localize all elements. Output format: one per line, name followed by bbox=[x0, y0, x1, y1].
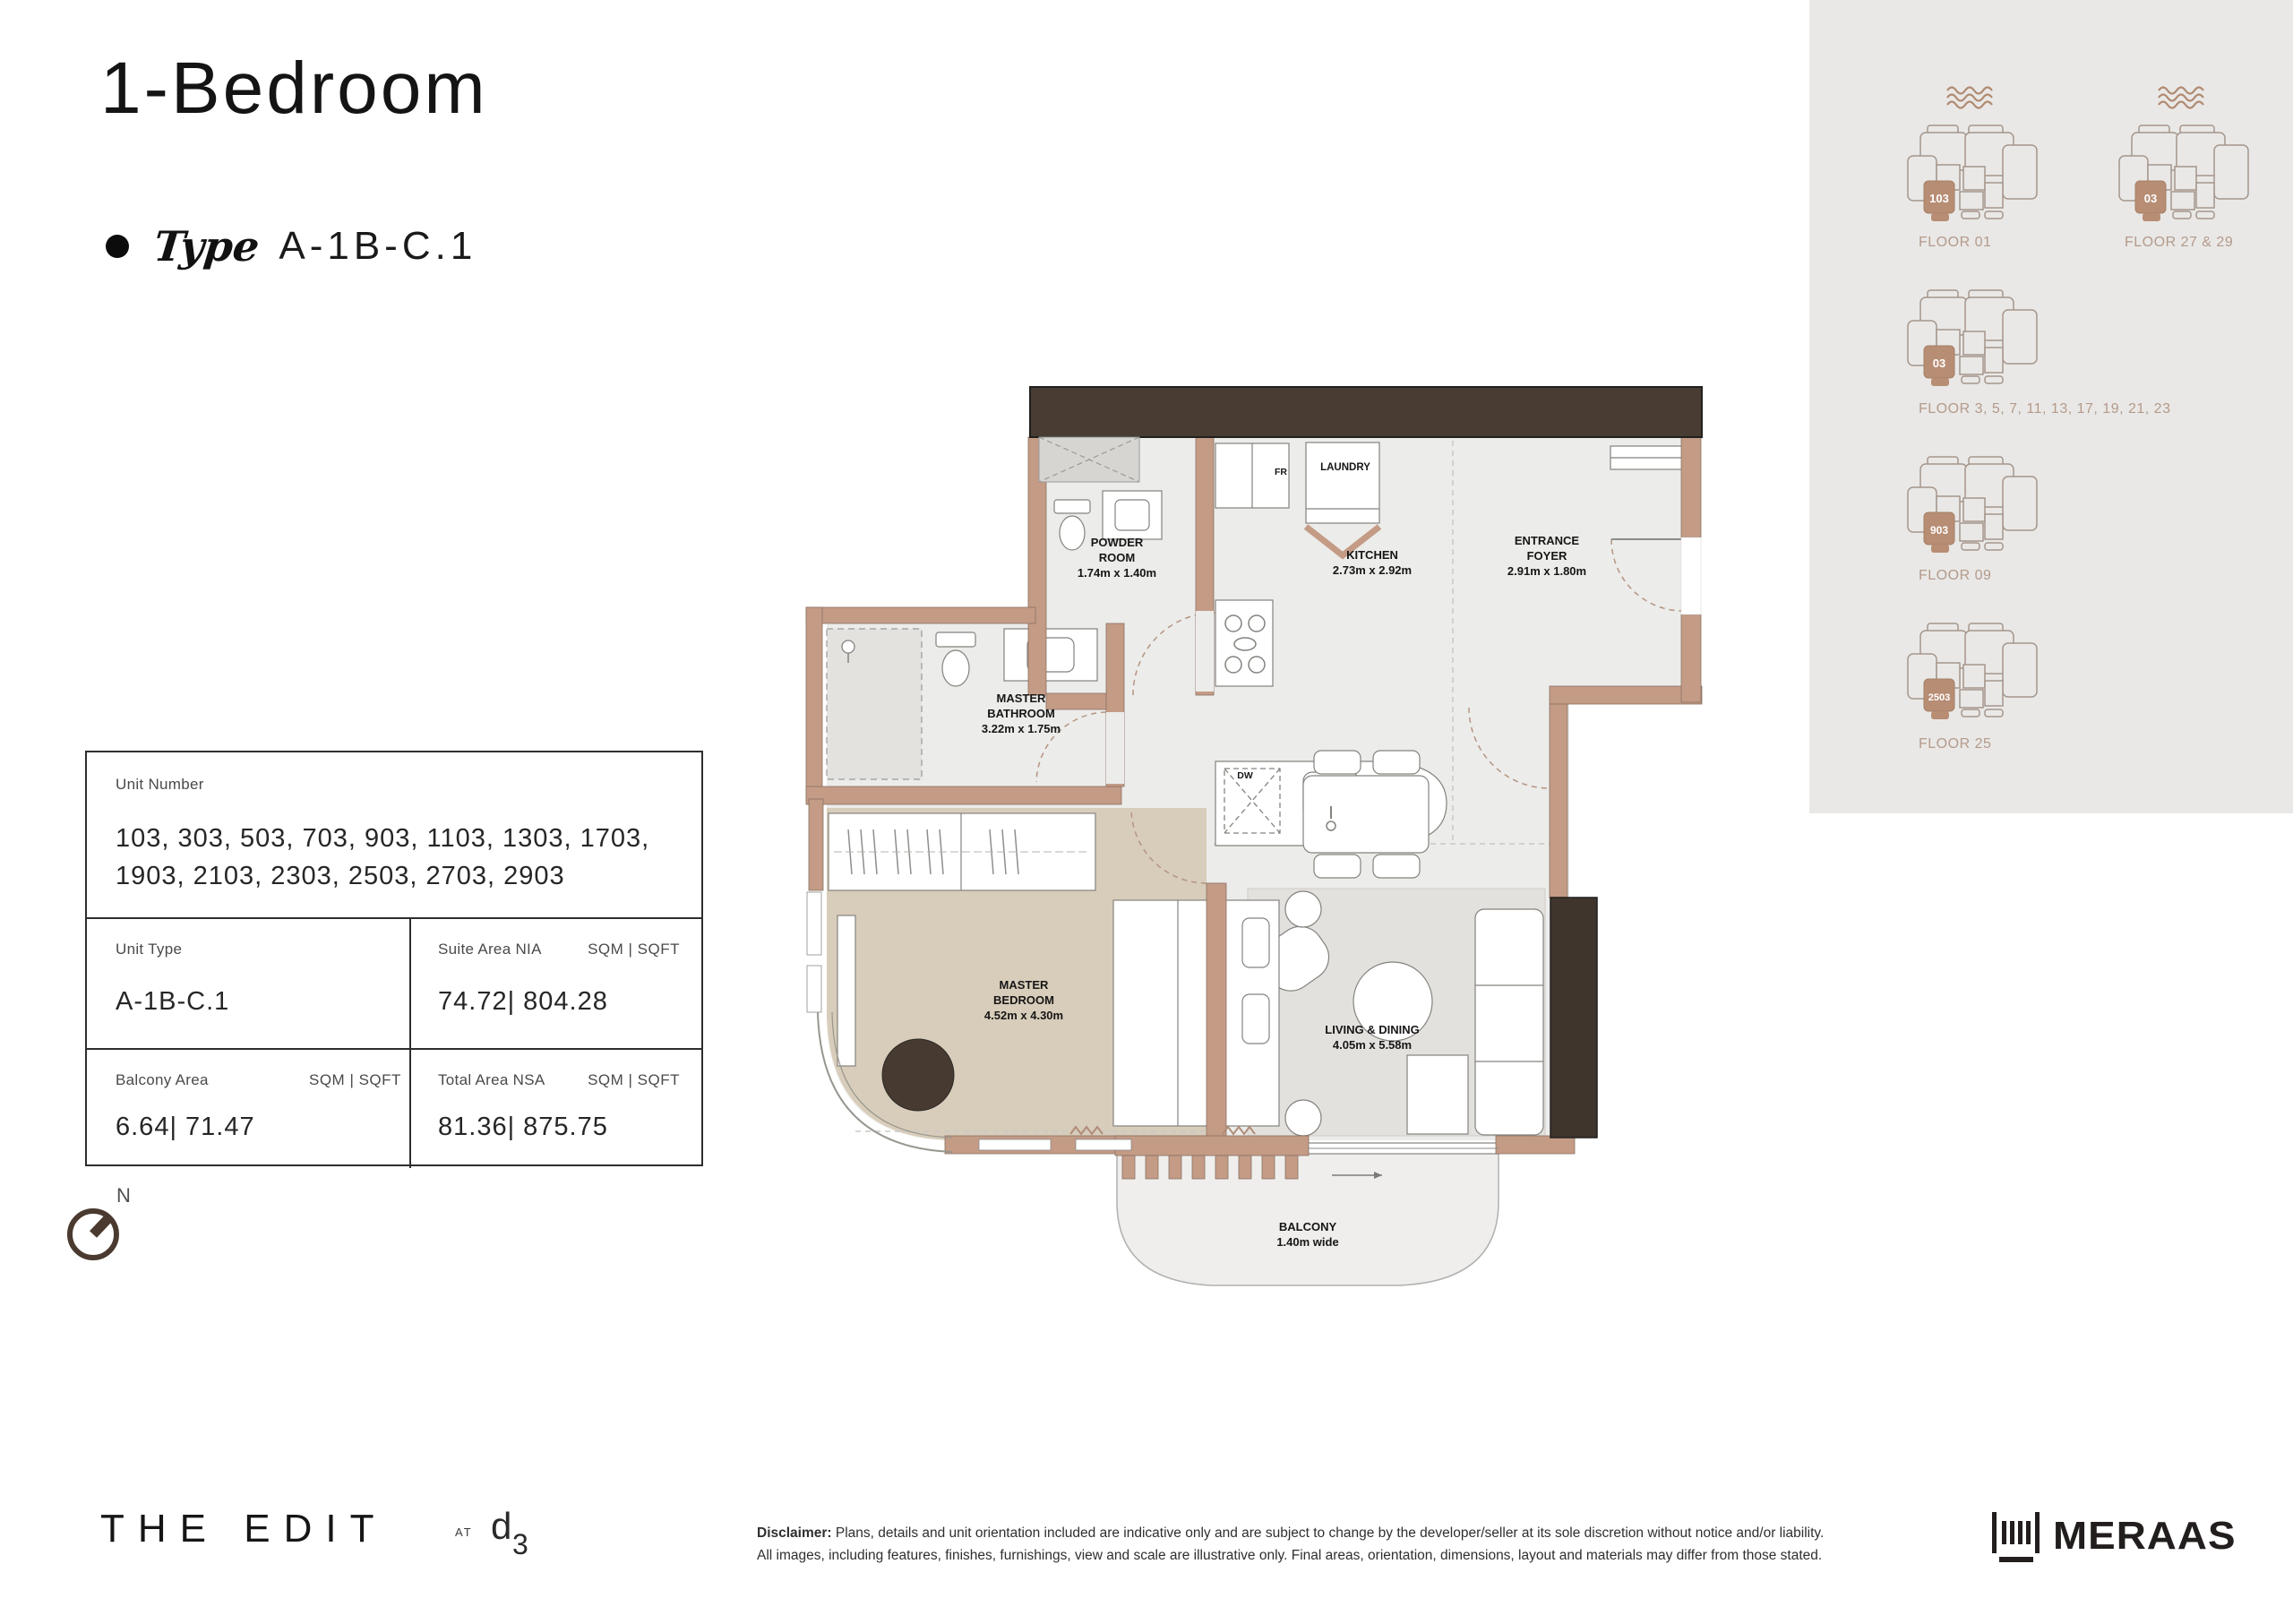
room-label-foyer: ENTRANCE FOYER 2.91m x 1.80m bbox=[1498, 534, 1596, 580]
page-title: 1-Bedroom bbox=[100, 47, 488, 131]
disclaimer-line2: All images, including features, finishes… bbox=[757, 1548, 1822, 1563]
keyplan-unit-number: 2503 bbox=[1928, 692, 1950, 703]
room-name: ENTRANCE FOYER bbox=[1498, 534, 1596, 564]
balcony-area-units: SQM | SQFT bbox=[309, 1071, 401, 1089]
room-name: BALCONY bbox=[1279, 1220, 1336, 1235]
keyplan-floor-25: 2503 bbox=[1906, 622, 2042, 724]
brand-at-label: AT bbox=[455, 1525, 473, 1539]
keyplan-label-floor-09: FLOOR 09 bbox=[1919, 568, 1991, 584]
room-name: MASTER BEDROOM bbox=[977, 978, 1071, 1009]
dishwasher-label: DW bbox=[1237, 770, 1253, 781]
north-arrow-icon bbox=[61, 1184, 168, 1274]
keyplan-label-floor-odd: FLOOR 3, 5, 7, 11, 13, 17, 19, 21, 23 bbox=[1919, 401, 2170, 417]
balcony-area-label: Balcony Area bbox=[116, 1071, 209, 1089]
keyplan-floor-odd: 03 bbox=[1906, 288, 2042, 391]
total-area-value: 81.36| 875.75 bbox=[438, 1113, 608, 1142]
balcony-area-value: 6.64| 71.47 bbox=[116, 1113, 255, 1142]
type-script-label: Type bbox=[151, 222, 262, 271]
brand-logo: THE EDIT bbox=[100, 1507, 387, 1551]
room-label-bath: MASTER BATHROOM 3.22m x 1.75m bbox=[970, 692, 1073, 737]
room-label-bed: MASTER BEDROOM 4.52m x 4.30m bbox=[977, 978, 1071, 1024]
keyplan-floor-09: 903 bbox=[1906, 455, 2042, 557]
room-dims: 4.52m x 4.30m bbox=[984, 1009, 1063, 1024]
type-value: A-1B-C.1 bbox=[279, 224, 477, 269]
unit-type-label: Unit Type bbox=[116, 941, 182, 958]
developer-logo: MERAAS bbox=[2053, 1514, 2237, 1559]
unit-number-line1: 103, 303, 503, 703, 903, 1103, 1303, 170… bbox=[116, 824, 649, 854]
d3-logo-3: 3 bbox=[512, 1528, 528, 1561]
fridge-label: FR bbox=[1275, 467, 1287, 477]
waves-icon bbox=[2157, 85, 2211, 112]
bullet-icon bbox=[106, 235, 129, 258]
keyplan-unit-number: 03 bbox=[1933, 357, 1945, 370]
keyplan-label-floor-27-29: FLOOR 27 & 29 bbox=[2125, 235, 2233, 251]
disclaimer-label: Disclaimer: bbox=[757, 1525, 832, 1541]
room-dims: 3.22m x 1.75m bbox=[982, 722, 1061, 737]
compass: N bbox=[61, 1184, 168, 1274]
keyplan-floor-01: 103 bbox=[1906, 124, 2042, 226]
room-dims: 2.73m x 2.92m bbox=[1333, 563, 1412, 579]
keyplan-floor-27-29: 03 bbox=[2117, 124, 2254, 226]
keyplan-unit-number: 103 bbox=[1929, 192, 1949, 205]
room-name: LIVING & DINING bbox=[1325, 1023, 1419, 1038]
disclaimer-line1: Plans, details and unit orientation incl… bbox=[832, 1525, 1825, 1541]
disclaimer-text: Disclaimer: Plans, details and unit orie… bbox=[757, 1523, 1885, 1567]
unit-number-label: Unit Number bbox=[116, 776, 204, 794]
suite-area-label: Suite Area NIA bbox=[438, 941, 542, 958]
meraas-icon bbox=[1990, 1510, 2042, 1564]
room-label-living: LIVING & DINING 4.05m x 5.58m bbox=[1325, 1023, 1419, 1053]
keyplan-unit-number: 03 bbox=[2144, 192, 2157, 205]
keyplan-label-floor-01: FLOOR 01 bbox=[1919, 235, 1991, 251]
room-name: KITCHEN bbox=[1346, 548, 1398, 563]
room-dims: 1.40m wide bbox=[1276, 1235, 1338, 1250]
unit-info-table: Unit Number 103, 303, 503, 703, 903, 110… bbox=[85, 751, 703, 1166]
total-area-units: SQM | SQFT bbox=[588, 1071, 680, 1089]
suite-area-units: SQM | SQFT bbox=[588, 941, 680, 958]
room-label-powder: POWDER ROOM 1.74m x 1.40m bbox=[1078, 536, 1156, 581]
north-label: N bbox=[116, 1184, 131, 1207]
suite-area-value: 74.72| 804.28 bbox=[438, 987, 608, 1017]
table-divider-h1 bbox=[87, 917, 701, 919]
room-name: MASTER BATHROOM bbox=[970, 692, 1073, 722]
total-area-label: Total Area NSA bbox=[438, 1071, 545, 1089]
room-dims: 4.05m x 5.58m bbox=[1333, 1038, 1412, 1053]
floor-plan bbox=[802, 385, 1706, 1294]
waves-icon bbox=[1945, 85, 1999, 112]
floor-plan-drawing bbox=[802, 385, 1706, 1294]
room-name: POWDER ROOM bbox=[1081, 536, 1153, 566]
keyplan-unit-number: 903 bbox=[1930, 524, 1948, 537]
table-divider-v bbox=[409, 917, 411, 1168]
table-divider-h2 bbox=[87, 1048, 701, 1050]
unit-type-heading: Type A-1B-C.1 bbox=[106, 222, 477, 271]
room-dims: 2.91m x 1.80m bbox=[1507, 564, 1586, 580]
room-label-balcony: BALCONY 1.40m wide bbox=[1276, 1220, 1338, 1250]
d3-logo: d bbox=[491, 1505, 511, 1548]
room-label-kitchen: KITCHEN 2.73m x 2.92m bbox=[1333, 548, 1412, 579]
keyplan-label-floor-25: FLOOR 25 bbox=[1919, 736, 1991, 752]
room-dims: 1.74m x 1.40m bbox=[1078, 566, 1156, 581]
unit-number-line2: 1903, 2103, 2303, 2503, 2703, 2903 bbox=[116, 862, 565, 891]
unit-type-value: A-1B-C.1 bbox=[116, 987, 229, 1017]
laundry-label: LAUNDRY bbox=[1320, 462, 1370, 473]
